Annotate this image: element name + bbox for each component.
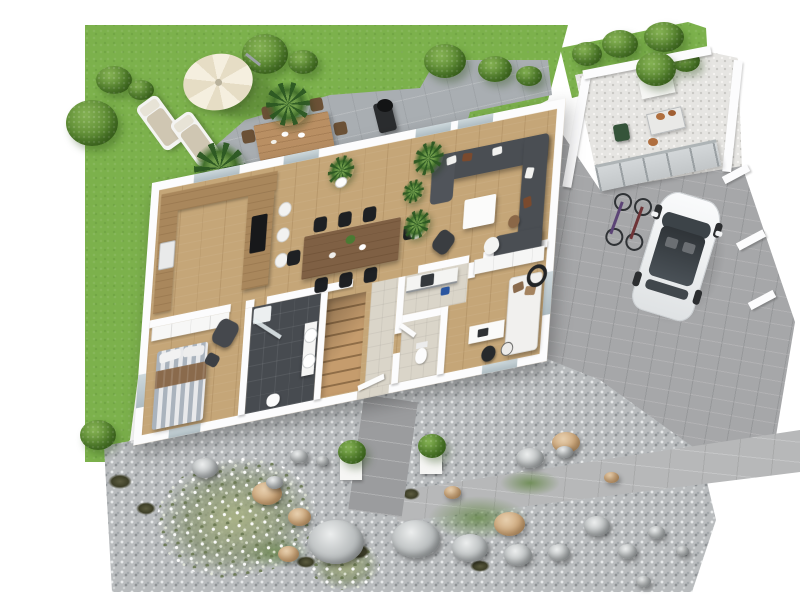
- table-dish: [359, 243, 366, 250]
- table-plant: [345, 234, 355, 245]
- bush: [572, 42, 602, 66]
- bush: [478, 56, 512, 82]
- tan-stone: [288, 508, 311, 526]
- bush: [96, 66, 132, 94]
- floor-plan-render: [0, 0, 800, 600]
- boulder: [648, 526, 665, 539]
- boxwood: [418, 434, 446, 458]
- grass-tuft: [136, 502, 156, 515]
- stair-shadow: [321, 292, 367, 398]
- planter-tree: [636, 52, 676, 86]
- boulder: [392, 520, 440, 558]
- tree: [602, 30, 638, 58]
- boulder: [548, 544, 570, 561]
- table-dish: [298, 132, 306, 138]
- tan-stone: [278, 546, 299, 562]
- bed-throw: [155, 361, 207, 389]
- terracotta-pot: [668, 110, 676, 116]
- boulder: [676, 546, 689, 556]
- tan-stone: [444, 486, 461, 499]
- boulder: [308, 520, 364, 564]
- table-dish: [281, 131, 289, 137]
- boulder: [556, 446, 573, 458]
- boulder: [516, 448, 544, 468]
- laptop: [477, 328, 488, 338]
- tan-stone: [604, 472, 619, 483]
- boulder: [584, 516, 610, 536]
- daybed-cushion: [513, 281, 525, 294]
- patio-chair: [309, 97, 324, 112]
- bush: [288, 50, 318, 74]
- boulder: [192, 458, 218, 478]
- tree: [644, 22, 684, 52]
- bed-pillow: [159, 348, 180, 364]
- bed-pillow: [183, 345, 205, 358]
- car-seats: [682, 242, 696, 255]
- boulder: [290, 450, 308, 463]
- tree: [424, 44, 466, 78]
- boulder: [504, 544, 532, 566]
- bed: [152, 341, 209, 430]
- bush: [80, 420, 116, 450]
- potted-palm: [266, 82, 310, 126]
- staircase: [321, 292, 367, 398]
- boulder: [266, 476, 283, 489]
- terracotta-pot: [648, 138, 658, 146]
- grill-bowl: [377, 99, 393, 112]
- bush: [516, 66, 542, 86]
- grass-tuft: [296, 556, 316, 568]
- kitchen-sink: [158, 240, 176, 271]
- boxwood: [338, 440, 366, 464]
- grass-tuft: [108, 474, 132, 489]
- car-seats: [664, 236, 678, 249]
- tree: [66, 100, 118, 146]
- boulder: [636, 576, 651, 587]
- ground-cover: [500, 470, 560, 496]
- daybed-cushion: [524, 286, 536, 295]
- boulder: [618, 544, 637, 559]
- boulder: [316, 456, 329, 466]
- tan-stone: [494, 512, 525, 536]
- boulder: [452, 534, 488, 562]
- table-dish: [329, 252, 336, 259]
- terracotta-pot: [656, 113, 665, 120]
- patio-chair: [333, 121, 348, 136]
- cooktop: [249, 213, 268, 253]
- table-dish: [270, 139, 277, 144]
- waste-bin: [613, 123, 631, 142]
- parasol-hub: [214, 78, 222, 86]
